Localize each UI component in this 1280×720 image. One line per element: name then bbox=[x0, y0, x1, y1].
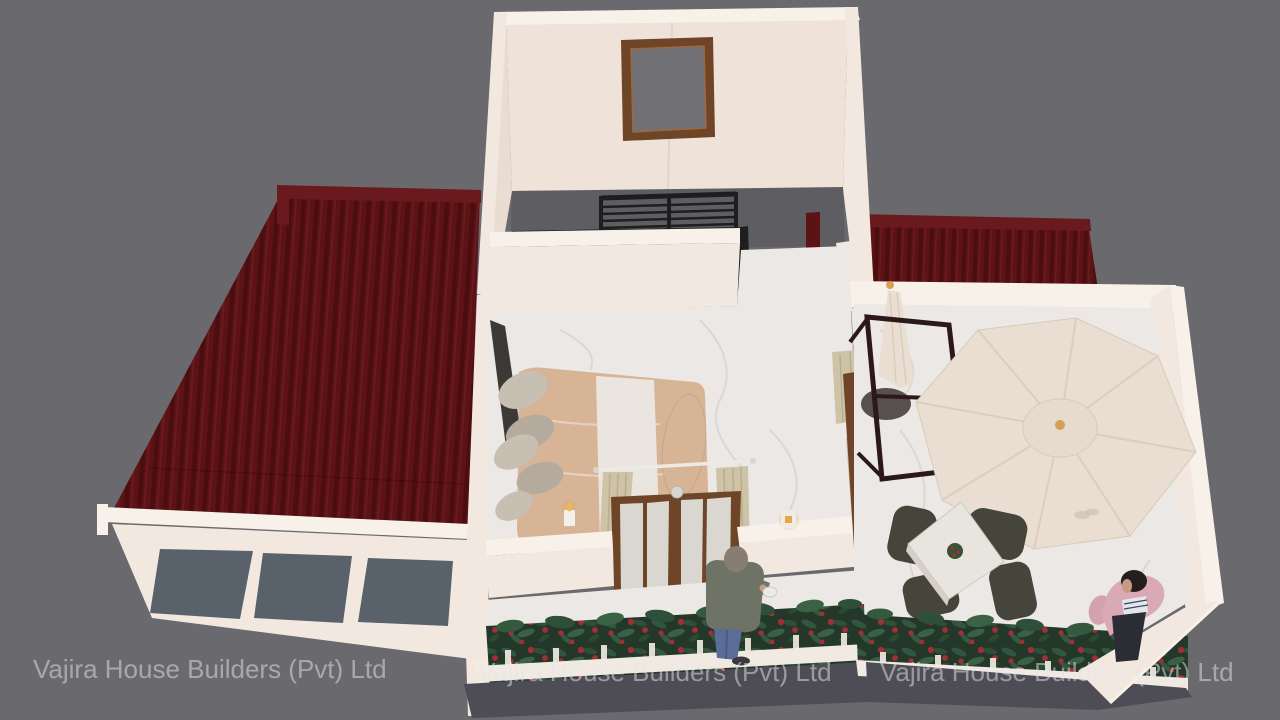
umbrella-finial bbox=[1055, 420, 1065, 430]
watermark-center: Vajira House Builders (Pvt) Ltd bbox=[478, 657, 832, 687]
watermarks: Vajira House Builders (Pvt) Ltd Vajira H… bbox=[33, 654, 1234, 687]
side-table bbox=[861, 388, 911, 420]
facade-window-2 bbox=[254, 553, 352, 623]
facade-window-1 bbox=[150, 549, 253, 619]
watermark-left: Vajira House Builders (Pvt) Ltd bbox=[33, 654, 387, 684]
table-centerpiece bbox=[947, 543, 963, 559]
stairwell-window bbox=[621, 37, 715, 141]
roof-terrace bbox=[850, 281, 1224, 668]
watermark-right: Vajira House Builders (Pvt) Ltd bbox=[880, 657, 1234, 687]
right-red-roof bbox=[856, 214, 1098, 292]
cup bbox=[763, 587, 777, 597]
facade-window-3 bbox=[358, 558, 453, 626]
head bbox=[724, 546, 748, 572]
half-wall bbox=[488, 228, 740, 313]
render-canvas: Vajira House Builders (Pvt) Ltd Vajira H… bbox=[0, 0, 1280, 720]
wall-light bbox=[779, 510, 799, 530]
door-knob bbox=[671, 486, 683, 498]
floor-plan-render: Vajira House Builders (Pvt) Ltd Vajira H… bbox=[0, 0, 1280, 720]
